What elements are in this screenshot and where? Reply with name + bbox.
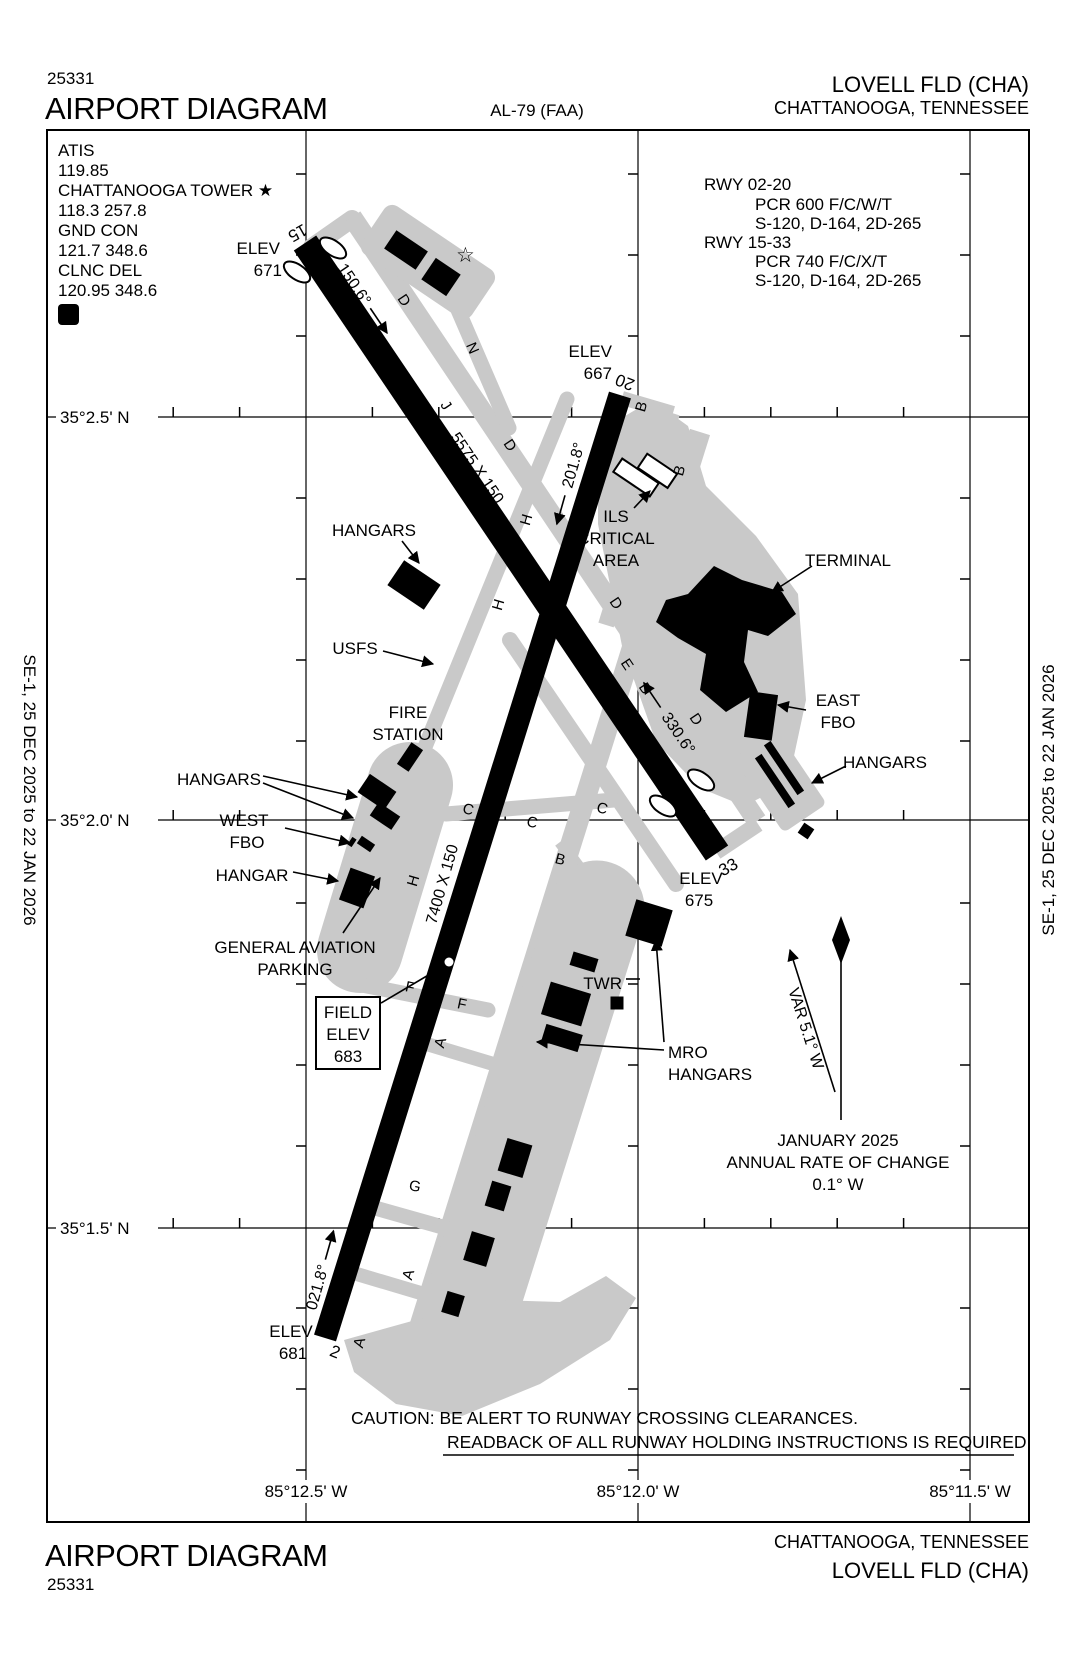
field-elev-value: 683 xyxy=(334,1047,362,1066)
terminal-label: TERMINAL xyxy=(805,551,891,570)
fire-station-label-2: STATION xyxy=(372,725,443,744)
field-elev-box: FIELD ELEV 683 xyxy=(316,997,380,1069)
east-fbo-label-2: FBO xyxy=(821,713,856,732)
hangars-nw-building xyxy=(387,560,440,609)
page-title: AIRPORT DIAGRAM xyxy=(45,91,327,126)
lat-label-2: 35°2.0' N xyxy=(60,811,130,830)
taxiway-label-h2: H xyxy=(489,597,508,612)
field-elev-line-2: ELEV xyxy=(326,1025,370,1044)
airport-name: LOVELL FLD (CHA) xyxy=(832,72,1029,97)
elev-20-label: ELEV xyxy=(569,342,613,361)
ils-label-3: AREA xyxy=(593,551,640,570)
hangar-label: HANGAR xyxy=(216,866,289,885)
variation-label: VAR 5.1° W xyxy=(784,986,826,1072)
comm-gnd-freq: 121.7 348.6 xyxy=(58,241,148,260)
elev-20-value: 667 xyxy=(584,364,612,383)
footer-airport: LOVELL FLD (CHA) xyxy=(832,1558,1029,1583)
west-fbo-label-2: FBO xyxy=(230,833,265,852)
taxiway-label-g: G xyxy=(407,1177,422,1196)
comm-tower-freq: 118.3 257.8 xyxy=(58,201,147,220)
airport-diagram-page: 25331 AIRPORT DIAGRAM AL-79 (FAA) LOVELL… xyxy=(0,0,1076,1650)
elev-2-value: 681 xyxy=(279,1344,307,1363)
runway-number-2: 2 xyxy=(327,1341,343,1362)
beacon-icon: ☆ xyxy=(456,243,475,267)
usfs-label: USFS xyxy=(332,639,377,658)
elev-33-value: 675 xyxy=(685,891,713,910)
tower-building xyxy=(611,997,624,1010)
runway-number-20: 20 xyxy=(613,370,638,395)
elev-15-value: 671 xyxy=(254,261,282,280)
rwy-1533-pcr: PCR 740 F/C/X/T xyxy=(755,252,887,271)
edition-left: SE-1, 25 DEC 2025 to 22 JAN 2026 xyxy=(20,654,39,925)
chart-code-top: 25331 xyxy=(47,69,94,88)
taxiway-label-j: J xyxy=(437,398,455,414)
fire-station-label-1: FIRE xyxy=(389,703,428,722)
airport-city: CHATTANOOGA, TENNESSEE xyxy=(774,98,1029,118)
taxiway-label-a2: A xyxy=(399,1268,418,1282)
caution-note: CAUTION: BE ALERT TO RUNWAY CROSSING CLE… xyxy=(351,1408,1031,1455)
annual-rate-value: 0.1° W xyxy=(812,1175,863,1194)
ils-label-2: CRITICAL xyxy=(577,529,654,548)
rwy-0220-codes: S-120, D-164, 2D-265 xyxy=(755,214,921,233)
rwy-1533-label: RWY 15-33 xyxy=(704,233,791,252)
hangars-e-label: HANGARS xyxy=(843,753,927,772)
variation-date: JANUARY 2025 xyxy=(777,1131,898,1150)
lat-label-3: 35°1.5' N xyxy=(60,1219,130,1238)
footer-title: AIRPORT DIAGRAM xyxy=(45,1538,327,1573)
rwy-1533-codes: S-120, D-164, 2D-265 xyxy=(755,271,921,290)
diagram-canvas: 25331 AIRPORT DIAGRAM AL-79 (FAA) LOVELL… xyxy=(0,0,1076,1650)
field-elev-line-1: FIELD xyxy=(324,1003,372,1022)
comm-tower: CHATTANOOGA TOWER ★ xyxy=(58,181,273,200)
comm-clnc: CLNC DEL xyxy=(58,261,142,280)
north-variation-group: VAR 5.1° W JANUARY 2025 ANNUAL RATE OF C… xyxy=(727,916,950,1194)
comm-atis: ATIS xyxy=(58,141,95,160)
taxiway-label-c2: C xyxy=(525,813,540,832)
elev-2-label: ELEV xyxy=(269,1322,313,1341)
tower-label: TWR xyxy=(583,974,622,993)
lon-label-3: 85°11.5' W xyxy=(929,1482,1011,1501)
lat-label-1: 35°2.5' N xyxy=(60,408,130,427)
ga-parking-label-1: GENERAL AVIATION xyxy=(214,938,375,957)
east-fbo-label-1: EAST xyxy=(816,691,860,710)
lon-label-2: 85°12.0' W xyxy=(597,1482,680,1501)
mro-label-1: MRO xyxy=(668,1043,708,1062)
chart-ref: AL-79 (FAA) xyxy=(490,101,584,120)
footer-city: CHATTANOOGA, TENNESSEE xyxy=(774,1532,1029,1552)
lon-label-1: 85°12.5' W xyxy=(265,1482,348,1501)
elev-33-label: ELEV xyxy=(679,869,723,888)
elev-15-label: ELEV xyxy=(237,239,281,258)
mro-label-2: HANGARS xyxy=(668,1065,752,1084)
rwy-0220-pcr: PCR 600 F/C/W/T xyxy=(755,195,892,214)
comm-clnc-freq: 120.95 348.6 xyxy=(58,281,157,300)
annual-rate-label: ANNUAL RATE OF CHANGE xyxy=(727,1153,950,1172)
hangars-nw-label: HANGARS xyxy=(332,521,416,540)
comm-atis-freq: 119.85 xyxy=(58,161,109,180)
ils-label-1: ILS xyxy=(603,507,629,526)
ga-parking-label-2: PARKING xyxy=(257,960,332,979)
caution-line-2: READBACK OF ALL RUNWAY HOLDING INSTRUCTI… xyxy=(447,1432,1031,1452)
caution-line-1: CAUTION: BE ALERT TO RUNWAY CROSSING CLE… xyxy=(351,1408,858,1428)
datis-symbol: D xyxy=(63,307,74,324)
rwy-0220-label: RWY 02-20 xyxy=(704,175,791,194)
hangars-w-label: HANGARS xyxy=(177,770,261,789)
true-north-diamond-icon xyxy=(832,916,850,964)
edition-right: SE-1, 25 DEC 2025 to 22 JAN 2026 xyxy=(1039,664,1058,935)
runway-data-block: RWY 02-20 PCR 600 F/C/W/T S-120, D-164, … xyxy=(704,175,921,290)
comm-gnd: GND CON xyxy=(58,221,138,240)
footer-chart-code: 25331 xyxy=(47,1575,94,1594)
west-fbo-label-1: WEST xyxy=(219,811,268,830)
comm-block: ATIS 119.85 CHATTANOOGA TOWER ★ 118.3 25… xyxy=(58,141,273,325)
field-elevation-dot xyxy=(445,958,454,967)
east-small-building xyxy=(798,823,815,840)
